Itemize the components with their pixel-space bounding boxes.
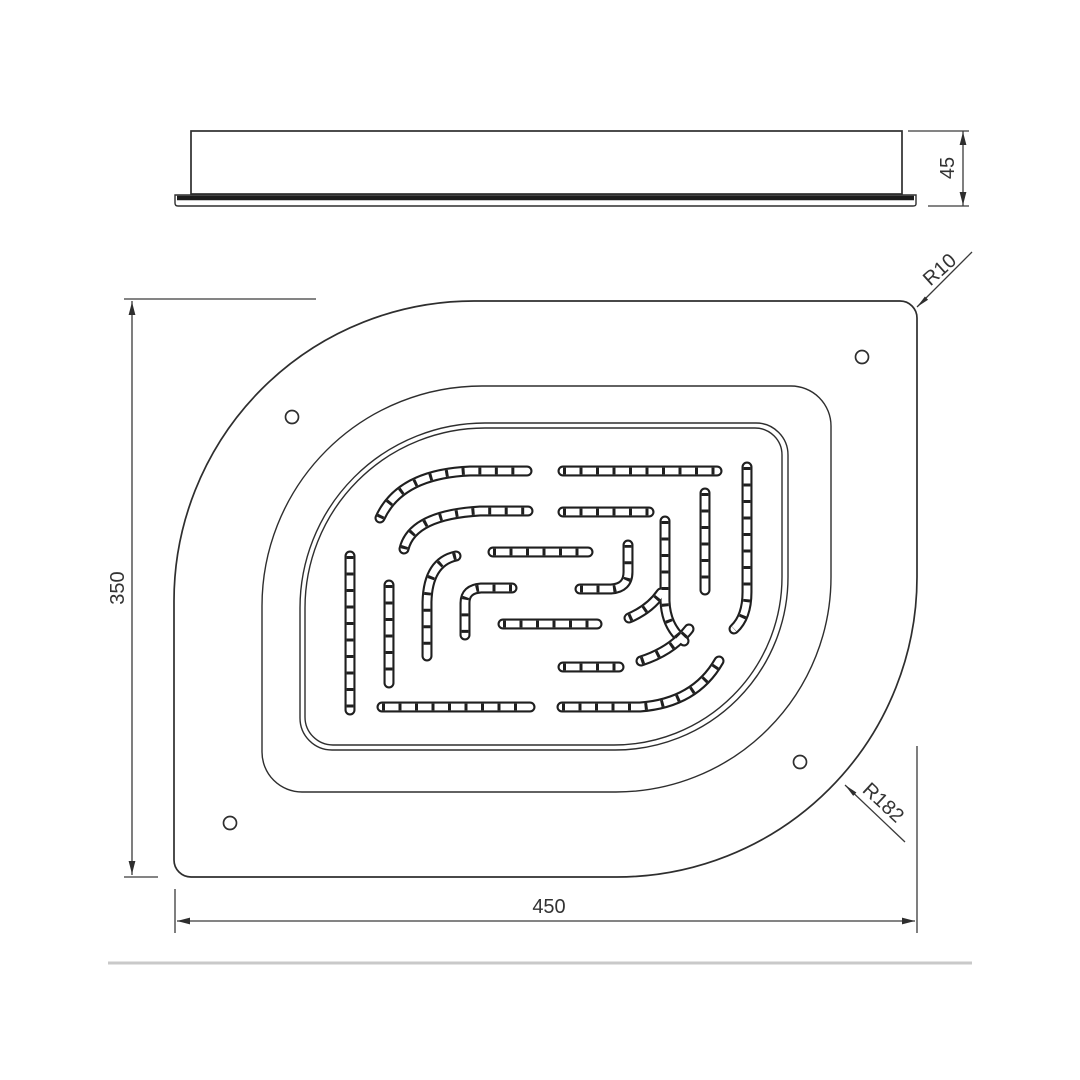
dimension-plan-height: 350 [107, 299, 316, 877]
mounting-hole-top-right [856, 351, 869, 364]
drawing-canvas: 45 [0, 0, 1080, 1080]
dimension-label-450: 450 [532, 896, 565, 918]
technical-drawing: 45 [0, 0, 1080, 1080]
radius-callout-r182: R182 [845, 779, 908, 842]
radius-callout-r10: R10 [917, 250, 972, 307]
slot-maze-cores [350, 467, 747, 710]
dimension-label-45: 45 [937, 157, 959, 179]
dimension-side-height: 45 [908, 131, 969, 206]
plan-view: 350 450 R10 R182 [107, 250, 972, 933]
dimension-label-350: 350 [107, 571, 129, 604]
slot [404, 511, 528, 549]
arrowhead-up [960, 132, 967, 145]
dimension-plan-width: 450 [175, 746, 917, 933]
radius-label-r182: R182 [858, 779, 908, 828]
side-view: 45 [175, 131, 969, 206]
mounting-hole-bottom-left [224, 817, 237, 830]
arrowhead-right [902, 918, 915, 925]
arrowhead-left [177, 918, 190, 925]
arrowhead-down [960, 192, 967, 205]
arrowhead-down [129, 861, 136, 874]
arrowhead-up [129, 302, 136, 315]
leader-arrowhead [845, 785, 856, 796]
plate-outer-outline [174, 301, 917, 877]
mounting-hole-bottom-right [794, 756, 807, 769]
slot-maze-ticks [350, 467, 747, 710]
slot-maze-outlines [350, 467, 747, 710]
side-view-body-outline [191, 131, 902, 194]
radius-label-r10: R10 [919, 250, 961, 291]
mounting-hole-top-left [286, 411, 299, 424]
